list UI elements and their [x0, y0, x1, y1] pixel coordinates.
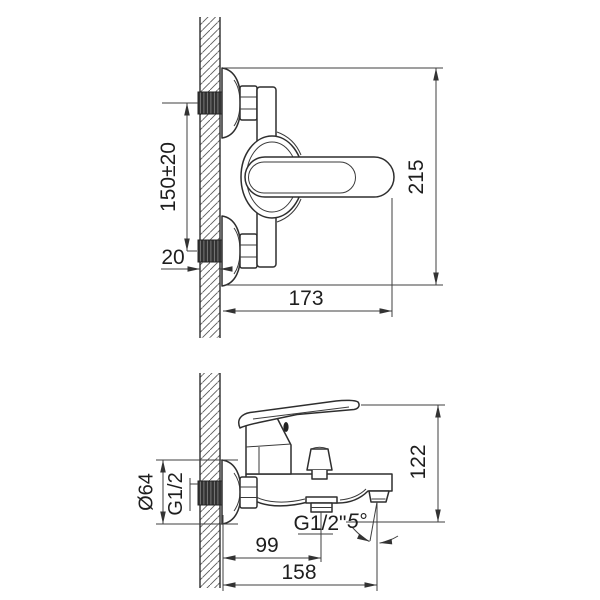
technical-drawing-page: 150±20 20 215 173	[0, 0, 600, 600]
dim-label-spout-angle: 5°	[347, 510, 367, 533]
inlet-pipe-upper	[198, 92, 224, 114]
handle-lever	[245, 157, 394, 197]
dim-label-outlet-offset: 99	[255, 534, 278, 557]
bottom-view: Ø64 G1/2 122 G1/2" 5° 99 158	[136, 373, 446, 591]
spout-aerator	[369, 491, 389, 502]
dim-label-wall-thickness: 20	[161, 246, 184, 269]
escutcheon-upper	[222, 68, 241, 138]
hex-nut-side	[240, 477, 257, 508]
escutcheon-side	[222, 460, 241, 524]
dim-label-escutcheon-diameter: Ø64	[136, 473, 158, 511]
dim-label-spout-reach: 158	[281, 561, 316, 584]
label-inlet-thread: G1/2	[165, 472, 187, 515]
wall-hatch	[200, 17, 220, 338]
top-view: 150±20 20 215 173	[157, 17, 443, 338]
hex-nut-lower	[240, 234, 257, 268]
dim-label-center-distance: 150±20	[157, 142, 180, 212]
spout-angle-arc-right	[380, 536, 399, 543]
dim-label-overall-height: 215	[405, 159, 428, 194]
inlet-pipe-lower	[198, 240, 224, 262]
faucet-dimension-drawing: 150±20 20 215 173	[0, 0, 600, 600]
dim-label-side-height: 122	[407, 444, 430, 479]
shower-outlet	[306, 497, 337, 512]
inlet-pipe-side	[198, 481, 224, 505]
hex-nut-upper	[240, 86, 257, 120]
label-outlet-thread: G1/2"	[294, 512, 347, 535]
handle-set-screw	[283, 422, 288, 432]
escutcheon-lower	[222, 216, 241, 286]
dim-label-body-depth: 173	[288, 287, 323, 310]
